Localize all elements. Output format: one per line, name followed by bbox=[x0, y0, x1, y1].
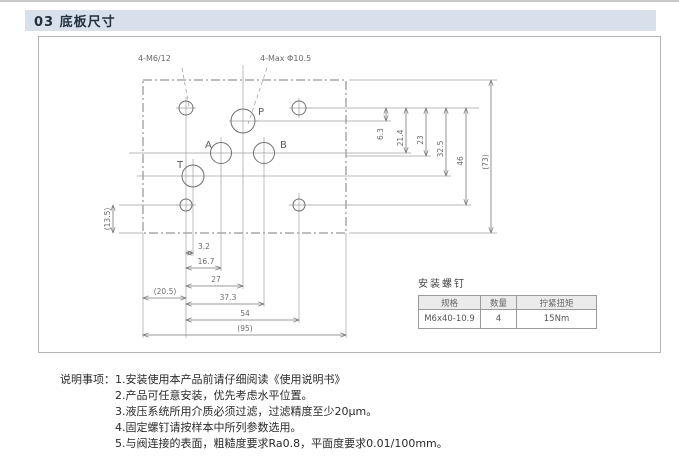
notes-list: 1.安装使用本产品前请仔细阅读《使用说明书》 2.产品可任意安装，优先考虑水平位… bbox=[115, 372, 448, 452]
screw-col-torque: 拧紧扭矩 bbox=[517, 296, 597, 310]
dim-right-73: (73) bbox=[481, 154, 490, 169]
dim-bottom-3.2: 3.2 bbox=[198, 242, 210, 251]
notes-label: 说明事项： bbox=[60, 372, 115, 452]
note-item-4: 4.固定螺钉请按样本中所列参数选用。 bbox=[115, 420, 448, 436]
note-item-2: 2.产品可任意安装，优先考虑水平位置。 bbox=[115, 388, 448, 404]
screw-table: 规格 数量 拧紧扭矩 M6x40-10.9 4 15Nm bbox=[418, 295, 597, 329]
note-item-5: 5.与阀连接的表面，粗糙度要求Ra0.8，平面度要求0.01/100mm。 bbox=[115, 436, 448, 452]
dim-right-6.3: 6.3 bbox=[376, 128, 385, 140]
mounting-screw-area: 安装螺钉 规格 数量 拧紧扭矩 M6x40-10.9 4 15Nm bbox=[418, 275, 618, 329]
dim-right-23: 23 bbox=[416, 135, 425, 145]
port-label-t: T bbox=[176, 160, 184, 171]
screw-quantity-value: 4 bbox=[481, 310, 517, 329]
dim-bottom-27: 27 bbox=[211, 275, 221, 284]
dim-left-13.5: (13.5) bbox=[103, 208, 112, 231]
note-item-1: 1.安装使用本产品前请仔细阅读《使用说明书》 bbox=[115, 372, 448, 388]
screw-col-spec: 规格 bbox=[419, 296, 481, 310]
port-holes bbox=[179, 101, 306, 211]
plate-outline bbox=[143, 80, 346, 233]
callout-max-ports: 4-Max Φ10.5 bbox=[260, 54, 311, 63]
screw-col-quantity: 数量 bbox=[481, 296, 517, 310]
port-label-a: A bbox=[205, 140, 212, 151]
callout-thread-holes: 4-M6/12 bbox=[138, 54, 171, 63]
page-title: 03 底板尺寸 bbox=[25, 11, 116, 30]
screw-table-title: 安装螺钉 bbox=[418, 275, 618, 290]
screw-table-data-row: M6x40-10.9 4 15Nm bbox=[419, 310, 597, 329]
drawing-panel: P A B T 4-M6/12 4-Max Φ10.5 6.3 21.4 23 … bbox=[38, 36, 661, 353]
dim-right-32.5: 32.5 bbox=[436, 140, 445, 157]
notes-section: 说明事项： 1.安装使用本产品前请仔细阅读《使用说明书》 2.产品可任意安装，优… bbox=[60, 372, 640, 452]
dim-bottom-95: (95) bbox=[237, 324, 252, 333]
section-header-bar: 03 底板尺寸 bbox=[25, 10, 656, 31]
dim-bottom-20.5: (20.5) bbox=[154, 287, 177, 296]
screw-spec-value: M6x40-10.9 bbox=[419, 310, 481, 329]
page-top-edge bbox=[0, 0, 679, 2]
dim-right-46: 46 bbox=[456, 156, 465, 166]
dim-bottom-54: 54 bbox=[240, 309, 250, 318]
dim-bottom-37.3: 37.3 bbox=[220, 293, 237, 302]
port-label-b: B bbox=[280, 140, 287, 151]
screw-torque-value: 15Nm bbox=[517, 310, 597, 329]
note-item-3: 3.液压系统所用介质必须过滤，过滤精度至少20μm。 bbox=[115, 404, 448, 420]
screw-table-header-row: 规格 数量 拧紧扭矩 bbox=[419, 296, 597, 310]
dim-right-21.4: 21.4 bbox=[396, 129, 405, 146]
port-label-p: P bbox=[258, 107, 264, 118]
dim-bottom-16.7: 16.7 bbox=[198, 257, 215, 266]
